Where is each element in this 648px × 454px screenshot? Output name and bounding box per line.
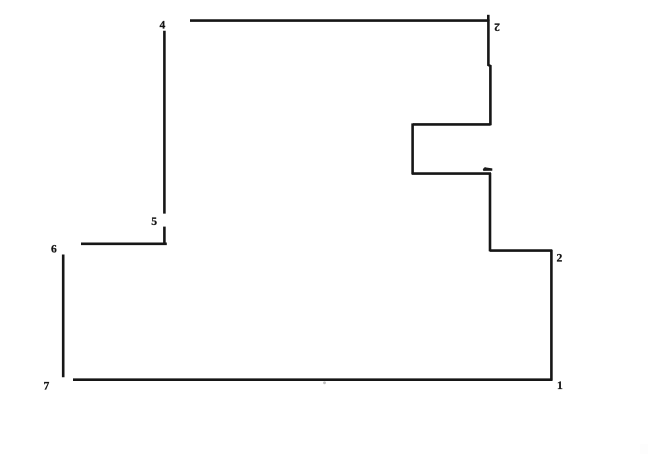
svg-text:4: 4 xyxy=(160,19,166,32)
svg-text:1: 1 xyxy=(557,379,563,392)
svg-text:7: 7 xyxy=(44,379,50,392)
svg-text:5: 5 xyxy=(151,215,157,228)
svg-text:6: 6 xyxy=(51,242,57,255)
svg-text:2: 2 xyxy=(557,251,563,264)
svg-text:2: 2 xyxy=(494,21,500,34)
